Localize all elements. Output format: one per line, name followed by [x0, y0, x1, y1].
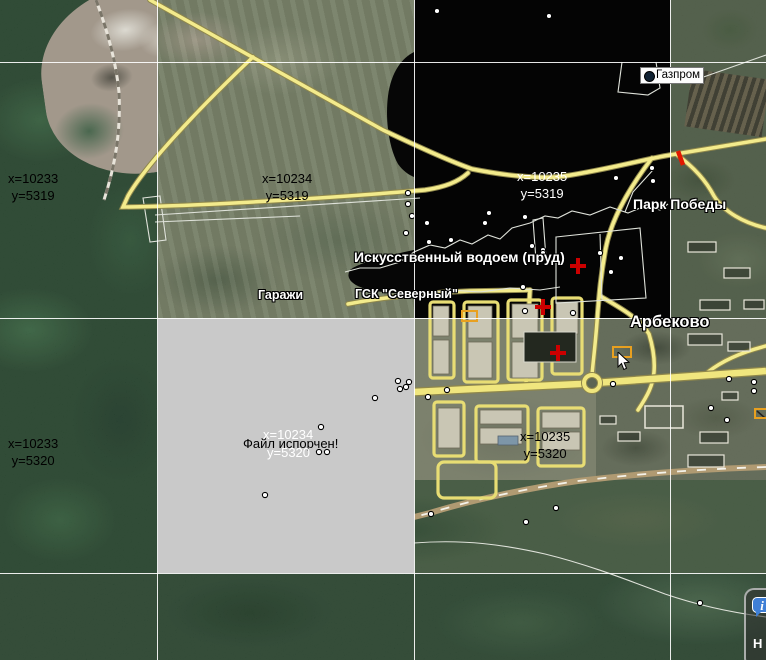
place-label-park-pobedy: Парк Победы	[633, 196, 726, 212]
place-label-pond: Искусственный водоем (пруд)	[354, 249, 565, 265]
tile-coordinate-label: x=10233 y=5319	[8, 170, 58, 204]
info-control-label: Н	[753, 636, 762, 651]
info-balloon-icon[interactable]: i	[752, 597, 766, 613]
tile-coordinate-label: x=10234 y=5319	[262, 170, 312, 204]
place-label-gsk-severny: ГСК "Северный"	[355, 287, 458, 301]
tile-coordinate-label: x=10235 y=5319	[517, 168, 567, 202]
tile-coordinate-label: x=10235 y=5320	[520, 428, 570, 462]
tile-coordinate-label: x=10233 y=5320	[8, 435, 58, 469]
map-canvas[interactable]: x=10234 Файл испорчен! y=5320 x=10233 y=…	[0, 0, 766, 660]
map-info-control[interactable]: i Н	[744, 588, 766, 660]
mouse-cursor	[617, 352, 637, 374]
place-label-garages: Гаражи	[258, 288, 303, 302]
labels-layer: x=10233 y=5319x=10234 y=5319x=10235 y=53…	[0, 0, 766, 660]
place-label-arbekovo: Арбеково	[630, 313, 710, 332]
poi-label-gazprom[interactable]: Газпром	[640, 67, 704, 84]
